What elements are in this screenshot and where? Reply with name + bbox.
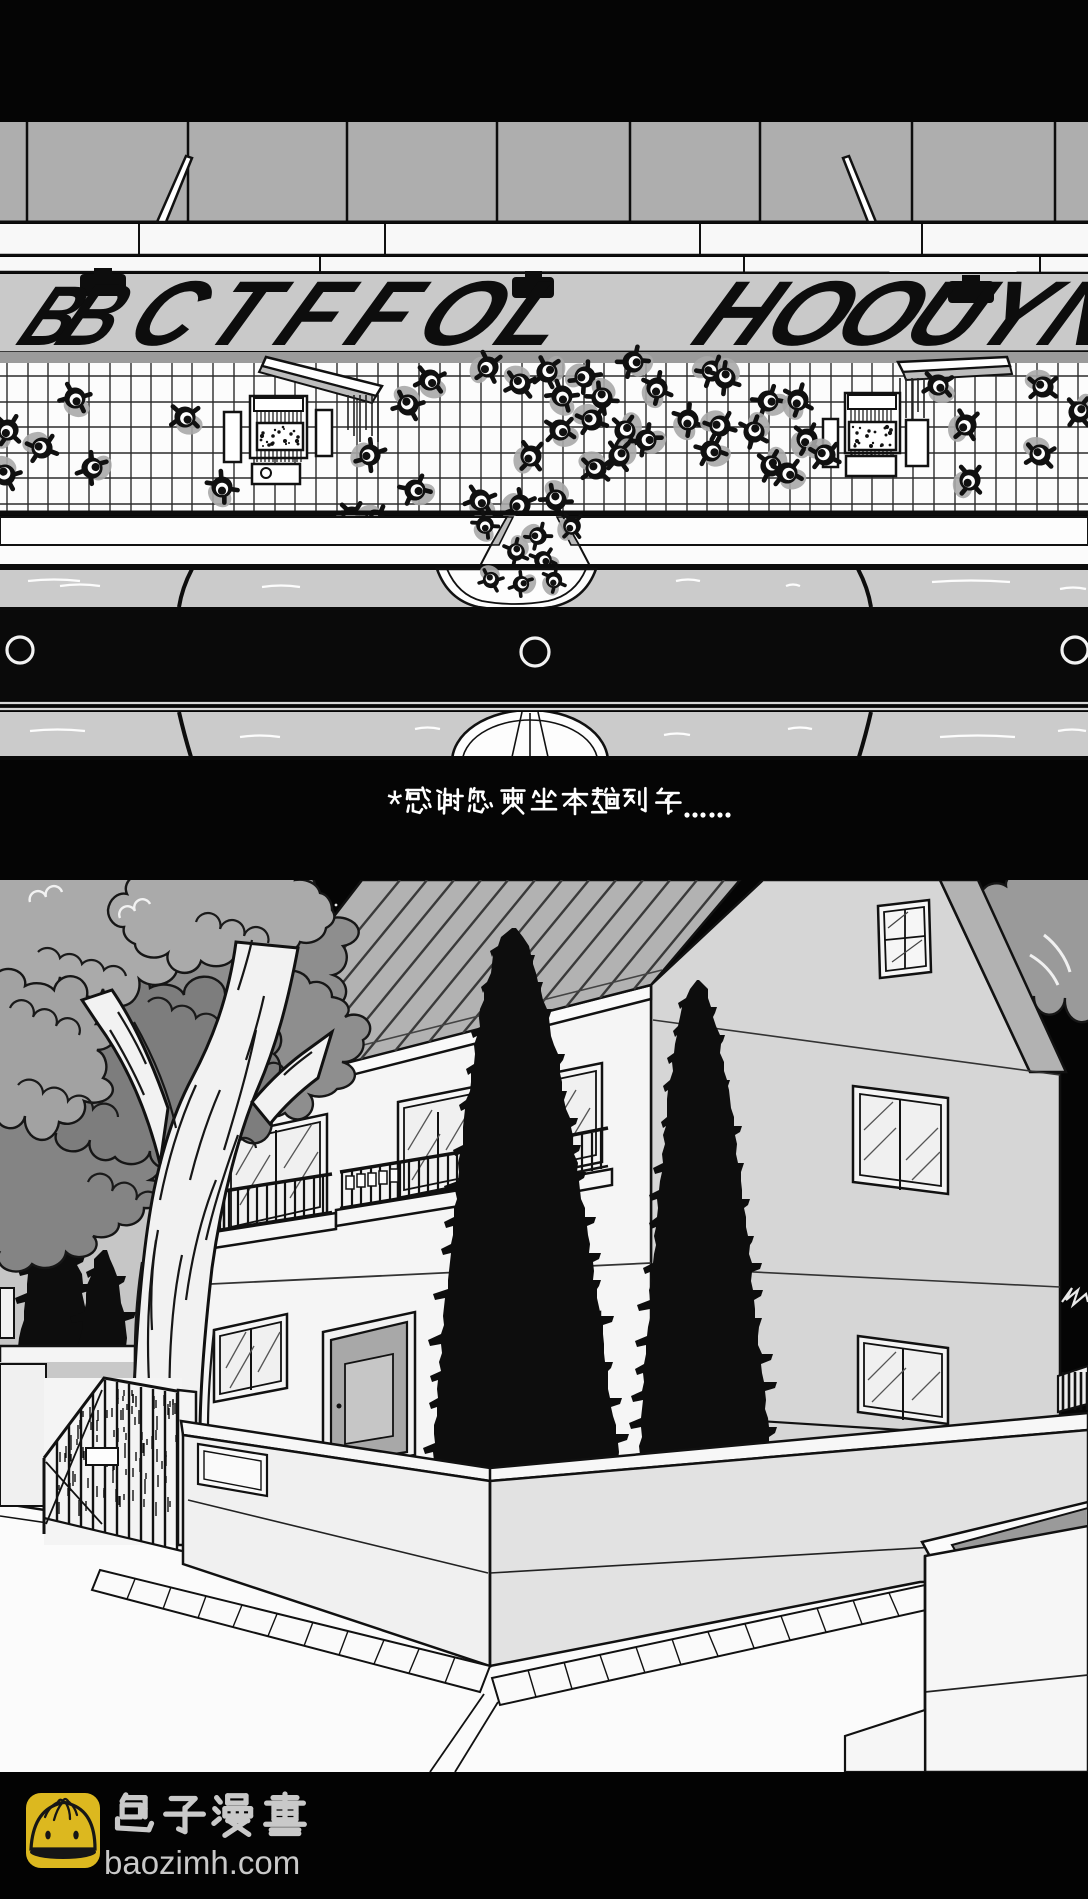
svg-text:baozimh.com: baozimh.com [104,1844,300,1881]
svg-text:*: * [387,783,403,827]
